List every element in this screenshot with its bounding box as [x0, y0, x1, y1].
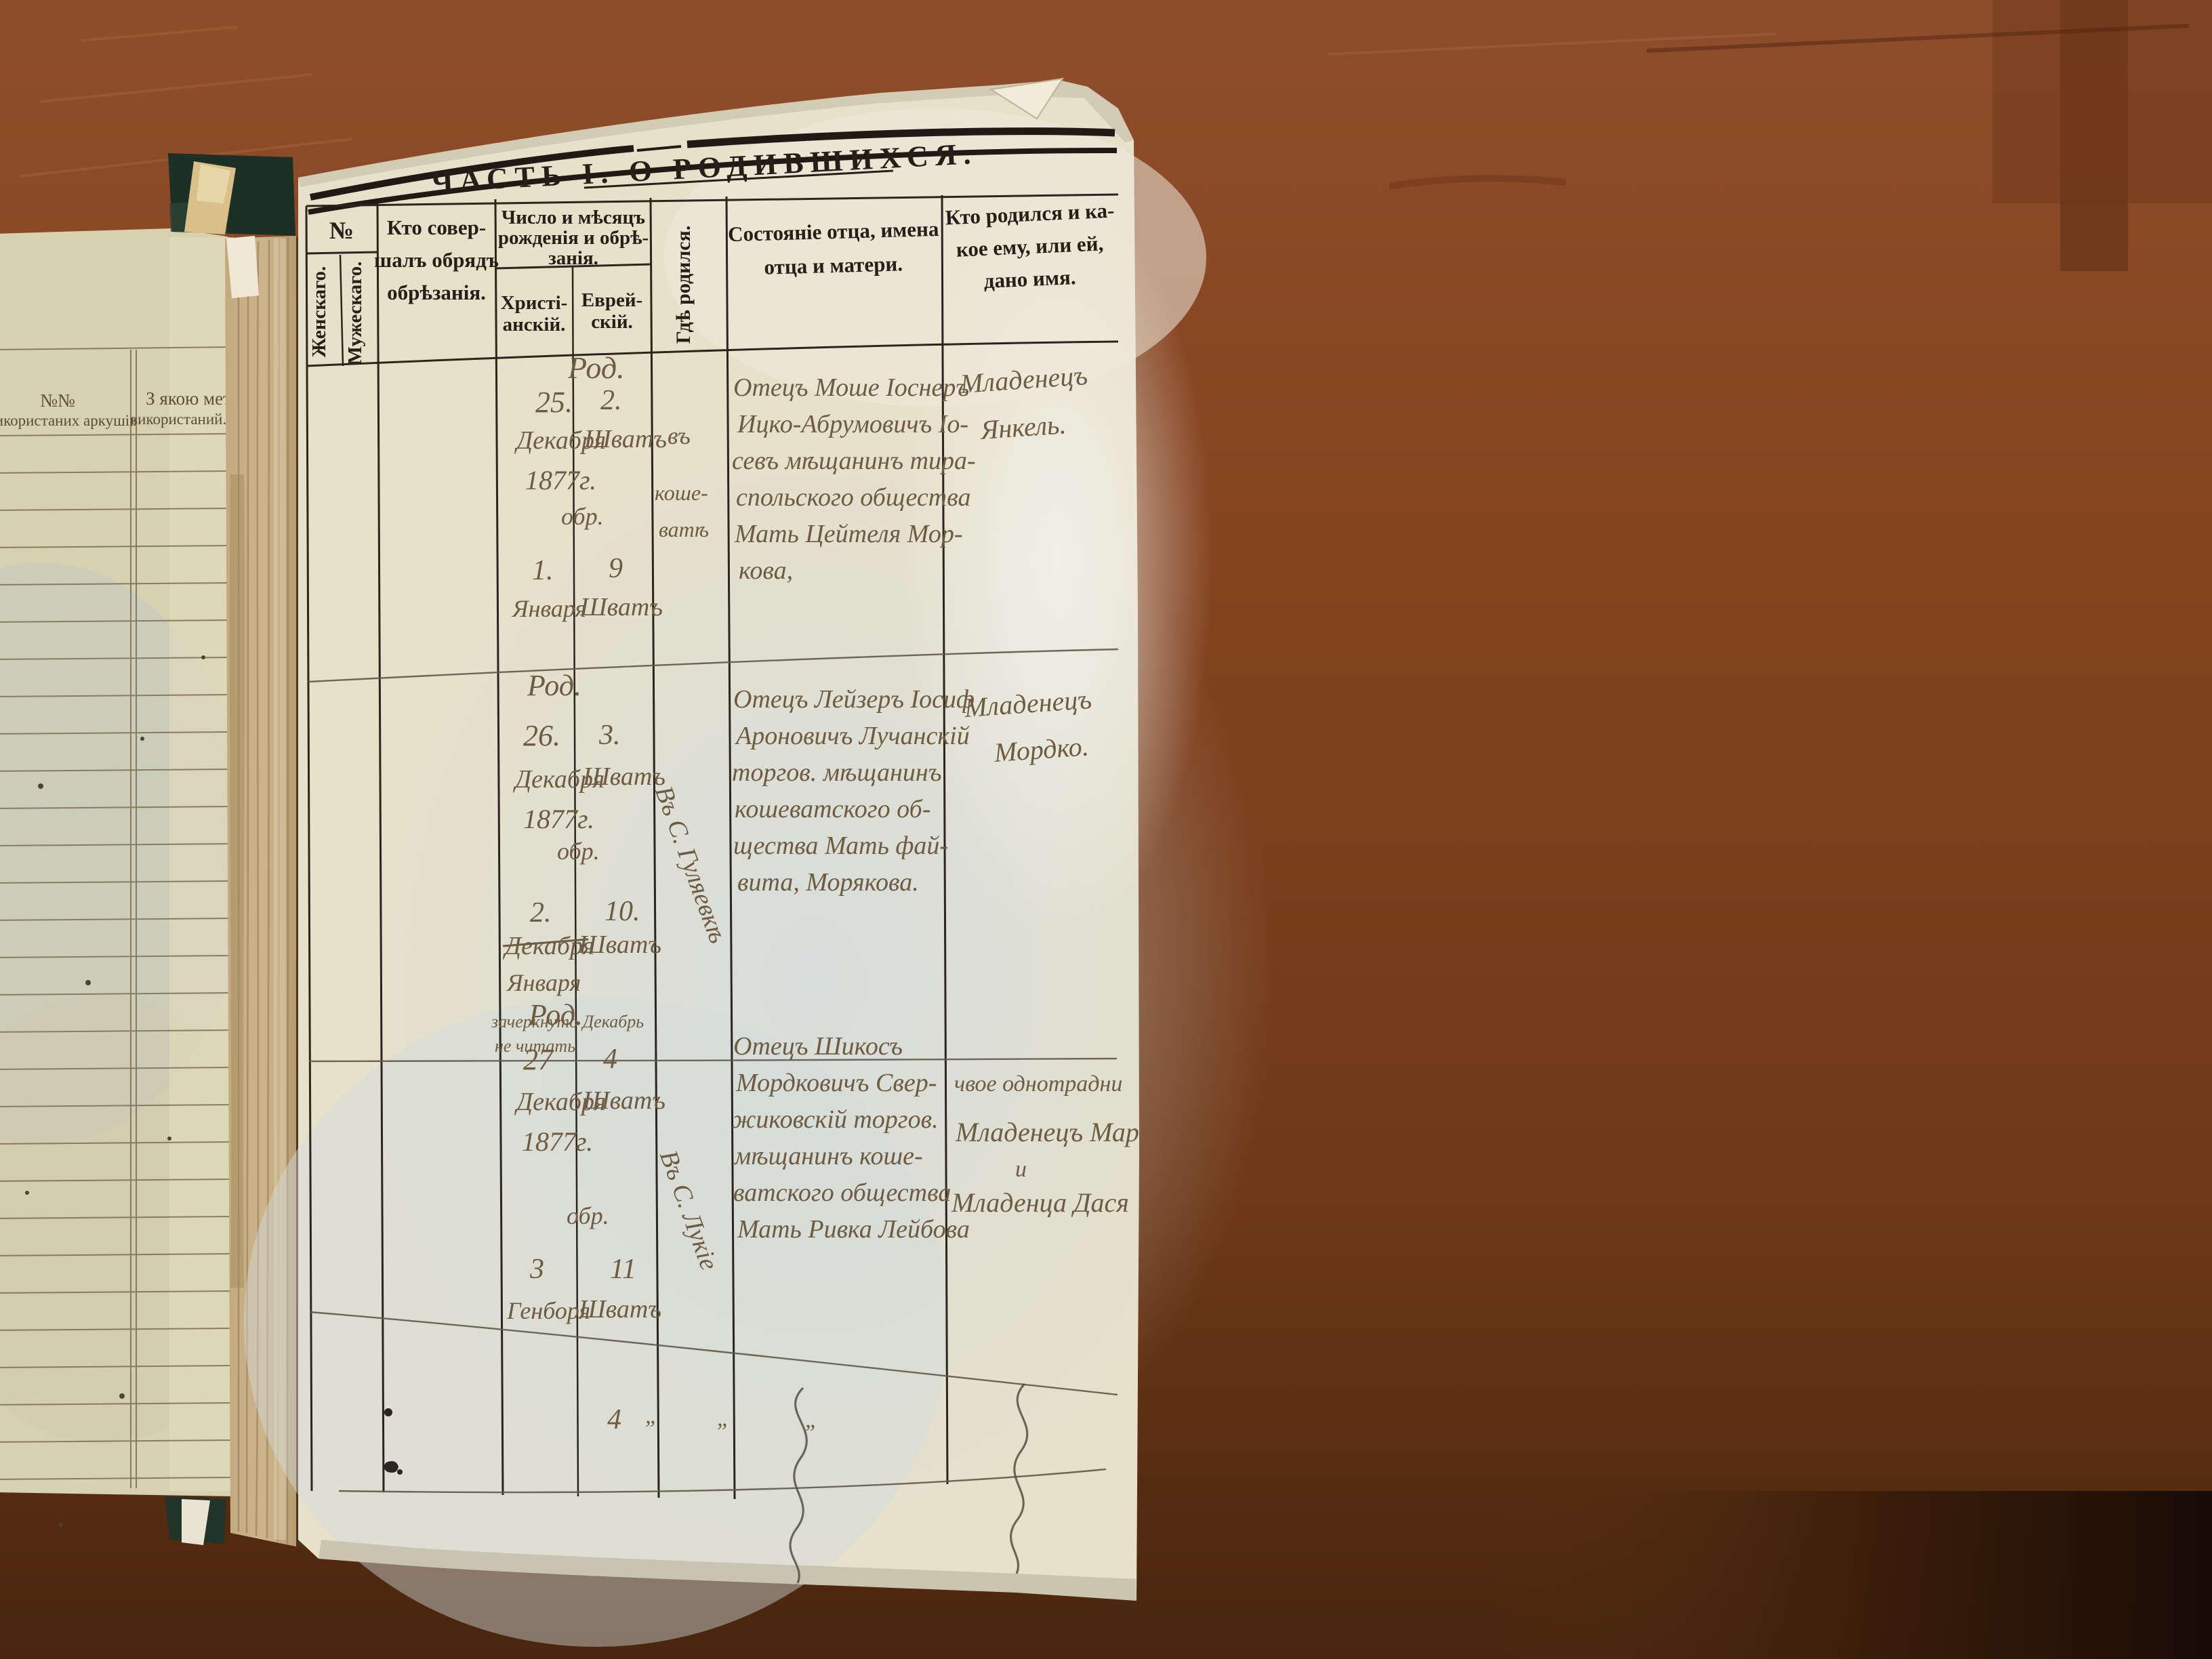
- svg-text:„: „: [645, 1404, 658, 1429]
- svg-text:2.: 2.: [600, 385, 622, 416]
- svg-text:Шватъ: Шватъ: [582, 762, 665, 791]
- svg-text:Мордковичъ Свер-: Мордковичъ Свер-: [735, 1069, 937, 1097]
- svg-text:Младенца Дася: Младенца Дася: [951, 1187, 1129, 1218]
- svg-text:Младенецъ Мар: Младенецъ Мар: [955, 1117, 1139, 1147]
- svg-text:Женскаго.: Женскаго.: [308, 266, 330, 358]
- svg-text:Кто совер-: Кто совер-: [387, 216, 486, 239]
- svg-text:Род.: Род.: [528, 998, 583, 1031]
- svg-text:№№: №№: [40, 390, 75, 411]
- svg-text:10.: 10.: [605, 896, 640, 927]
- svg-text:обр.: обр.: [561, 503, 604, 530]
- svg-text:Мужескаго.: Мужескаго.: [344, 262, 366, 365]
- svg-text:використаний. д: використаний. д: [130, 411, 239, 428]
- svg-text:1877г.: 1877г.: [523, 804, 594, 834]
- svg-text:2.: 2.: [530, 897, 552, 928]
- svg-text:Шватъ: Шватъ: [578, 930, 661, 959]
- svg-text:Шватъ: Шватъ: [582, 1086, 665, 1115]
- svg-text:1.: 1.: [532, 555, 554, 586]
- svg-text:Шватъ: Шватъ: [579, 593, 663, 621]
- svg-text:25.: 25.: [535, 386, 573, 419]
- svg-text:шалъ обрядъ: шалъ обрядъ: [374, 248, 499, 272]
- svg-text:спольского общества: спольского общества: [736, 483, 970, 512]
- svg-text:обрѣзанія.: обрѣзанія.: [387, 281, 486, 304]
- svg-text:Род.: Род.: [527, 669, 581, 702]
- svg-text:Христі-: Христі-: [501, 292, 568, 314]
- svg-text:1877г.: 1877г.: [525, 465, 596, 495]
- svg-text:обр.: обр.: [557, 838, 600, 865]
- svg-text:коше-: коше-: [655, 480, 708, 505]
- svg-text:дано имя.: дано имя.: [983, 265, 1076, 293]
- svg-text:4: 4: [607, 1404, 621, 1435]
- svg-text:Ароновичъ Лучанскій: Ароновичъ Лучанскій: [734, 722, 970, 750]
- svg-text:анскій.: анскій.: [503, 314, 566, 335]
- svg-text:4: 4: [603, 1044, 617, 1075]
- svg-text:торгов. мѣщанинъ: торгов. мѣщанинъ: [732, 758, 941, 787]
- svg-text:26.: 26.: [523, 719, 560, 752]
- svg-text:11: 11: [610, 1254, 636, 1285]
- svg-text:обр.: обр.: [567, 1202, 609, 1229]
- svg-text:Отецъ Моше Іоснеръ: Отецъ Моше Іоснеръ: [733, 373, 969, 402]
- svg-text:вита, Морякова.: вита, Морякова.: [737, 868, 919, 897]
- svg-text:Ицко-Абрумовичъ Іо-: Ицко-Абрумовичъ Іо-: [737, 410, 968, 438]
- svg-text:Шватъ: Шватъ: [578, 1295, 661, 1324]
- svg-text:Генборя: Генборя: [506, 1297, 590, 1324]
- svg-text:кошеватского об-: кошеватского об-: [735, 795, 930, 823]
- svg-text:Января: Января: [506, 969, 581, 996]
- svg-text:мѣщанинъ коше-: мѣщанинъ коше-: [733, 1142, 923, 1170]
- svg-text:отца и матери.: отца и матери.: [764, 251, 903, 279]
- svg-text:щества Мать фай-: щества Мать фай-: [733, 832, 948, 860]
- svg-text:кова,: кова,: [739, 556, 793, 585]
- svg-text:Января: Января: [511, 595, 586, 622]
- svg-text:Отецъ Лейзеръ Іосиф: Отецъ Лейзеръ Іосиф: [733, 685, 975, 714]
- svg-text:„: „: [717, 1406, 730, 1431]
- svg-text:Шватъ: Шватъ: [583, 425, 667, 453]
- svg-text:Еврей-: Еврей-: [581, 289, 642, 311]
- svg-text:ватѣ: ватѣ: [659, 517, 709, 541]
- svg-text:3: 3: [529, 1254, 544, 1285]
- svg-text:и: и: [1015, 1157, 1027, 1182]
- svg-text:З якою мет: З якою мет: [146, 388, 231, 409]
- svg-text:Мать Ривка Лейбова: Мать Ривка Лейбова: [737, 1215, 970, 1244]
- svg-text:чвое однотрадни: чвое однотрадни: [954, 1071, 1122, 1097]
- svg-text:Род.: Род.: [567, 350, 625, 385]
- svg-text:Отецъ Шикосъ: Отецъ Шикосъ: [733, 1032, 903, 1061]
- svg-text:№: №: [329, 217, 354, 244]
- svg-text:занія.: занія.: [548, 247, 598, 269]
- svg-text:Число и мѣсяцъ: Число и мѣсяцъ: [501, 207, 645, 228]
- svg-text:въ: въ: [668, 422, 691, 449]
- svg-text:жиковскій торгов.: жиковскій торгов.: [732, 1105, 939, 1134]
- svg-text:3.: 3.: [598, 720, 621, 751]
- svg-text:„: „: [805, 1408, 818, 1433]
- svg-text:Мать Цейтеля Мор-: Мать Цейтеля Мор-: [734, 520, 963, 548]
- svg-text:використаних аркушів: використаних аркушів: [0, 412, 137, 429]
- svg-text:ватского общества: ватского общества: [733, 1179, 951, 1207]
- svg-text:9: 9: [609, 553, 623, 584]
- svg-text:рожденія и обрѣ-: рожденія и обрѣ-: [498, 227, 649, 249]
- svg-text:севъ мѣщанинъ тира-: севъ мѣщанинъ тира-: [732, 447, 976, 475]
- svg-text:1877г.: 1877г.: [522, 1126, 593, 1157]
- svg-text:скій.: скій.: [591, 311, 633, 333]
- svg-text:27: 27: [523, 1043, 554, 1076]
- svg-text:Гдѣ родился.: Гдѣ родился.: [672, 226, 695, 344]
- svg-text:Янкель.: Янкель.: [978, 409, 1067, 445]
